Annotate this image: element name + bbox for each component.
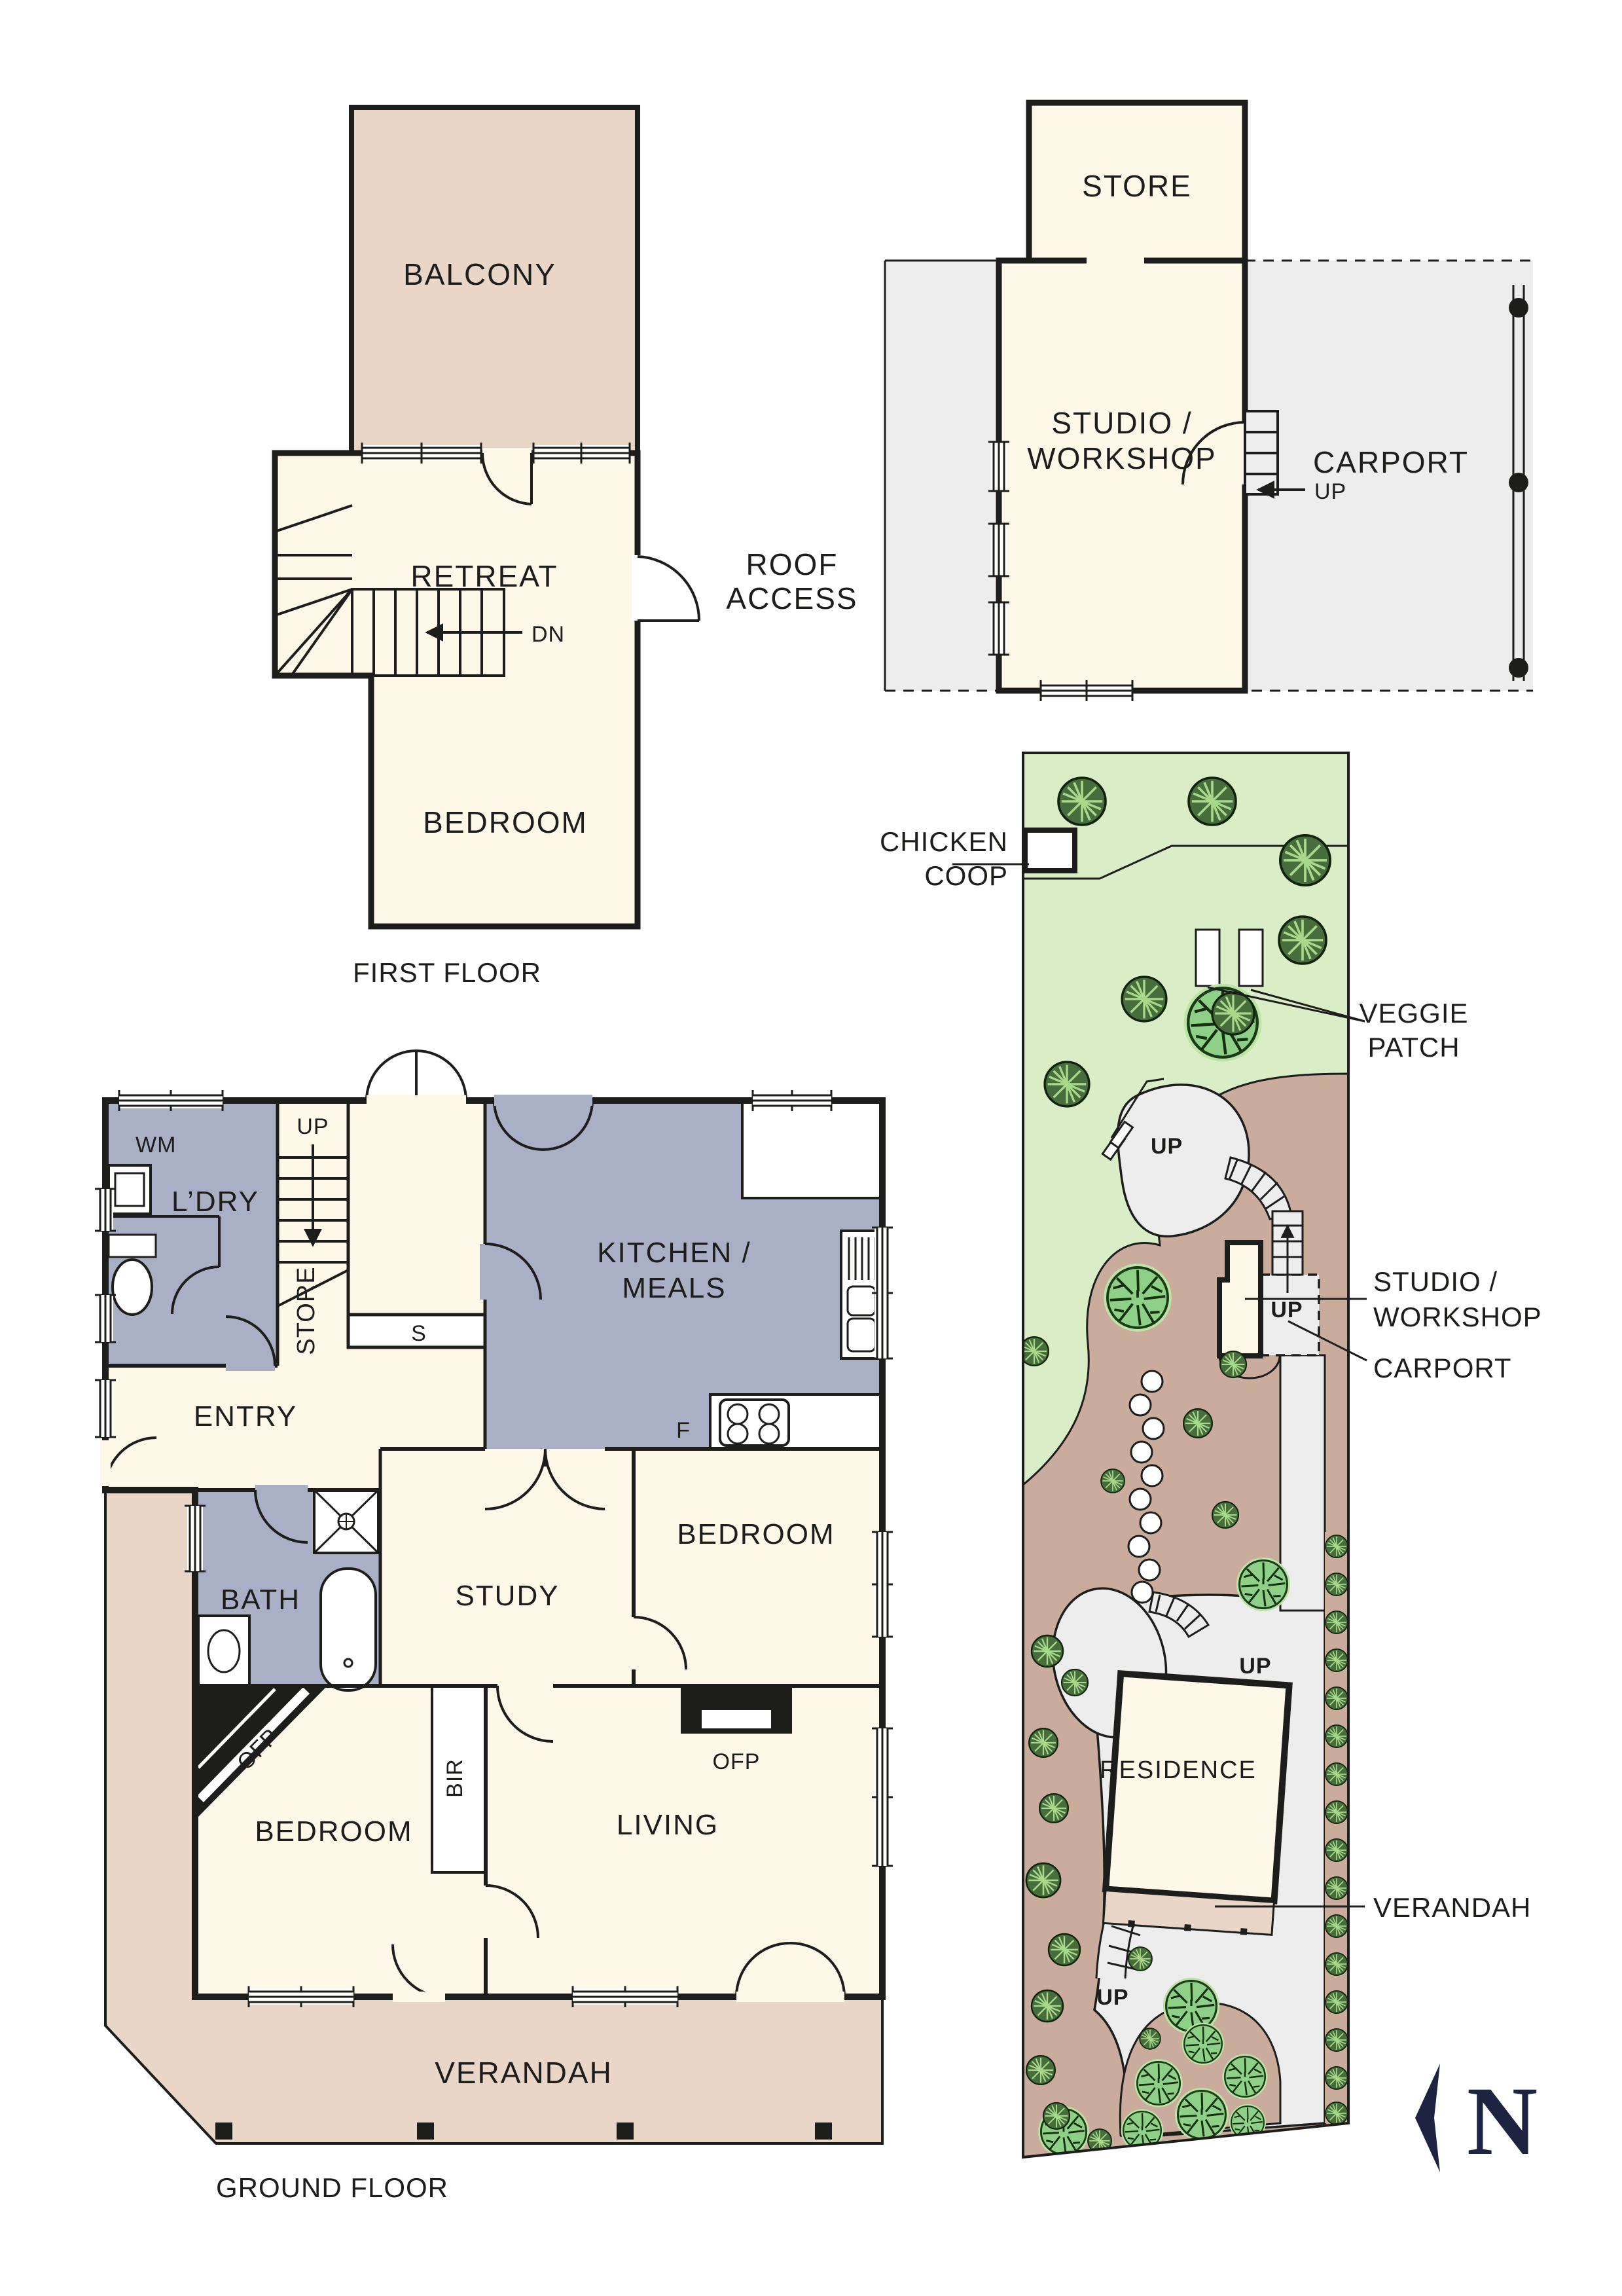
toilet-icon [109,1235,156,1315]
site-up-stairs: UP [1096,1985,1128,2010]
north-compass: N [1415,2064,1538,2176]
fridge-label: F [676,1418,691,1443]
tree-icon [1104,1264,1172,1332]
bush-icon [1325,2102,1348,2124]
verandah-label: VERANDAH [435,2056,613,2090]
first-floor-body [275,453,638,926]
entry-label: ENTRY [194,1400,297,1432]
ff-bedroom-label: BEDROOM [423,805,588,839]
store-label: STORE [1082,169,1192,203]
bush-icon [1325,1649,1348,1671]
site-studio-label2: WORKSHOP [1373,1302,1542,1332]
living-label: LIVING [617,1809,719,1841]
first-floor-plan: DN BALCONY RETREAT ROOF ACCESS BEDROOM F… [275,107,858,988]
bush-icon [1325,1535,1348,1558]
ob-up-label: UP [1314,479,1346,504]
bush-icon [1325,2067,1348,2089]
bush-icon [1049,1934,1080,1965]
gf-up-label: UP [297,1114,329,1139]
site-residence-group [1103,1673,1289,1937]
ob-studio-label2: WORKSHOP [1027,441,1216,475]
bush-icon [1325,1763,1348,1785]
bush-icon [1026,2056,1055,2085]
dn-label: DN [532,622,565,647]
kitchen-label2: MEALS [622,1272,726,1304]
bush-icon [1058,778,1106,825]
site-plan: CHICKEN COOP VEGGIE PATCH STUDIO / WORKS… [880,753,1542,2157]
bush-icon [1026,1863,1060,1897]
chicken-coop-label2: COOP [924,860,1008,891]
tree-icon [1175,2088,1229,2141]
bush-icon [1279,917,1326,964]
bush-icon [1220,1351,1246,1377]
bush-icon [1325,1687,1348,1709]
veggie-label2: PATCH [1367,1032,1460,1063]
bush-icon [1183,1409,1212,1438]
bush-icon [1122,977,1166,1021]
site-carport-label: CARPORT [1373,1353,1512,1383]
bush-icon [1032,1635,1063,1667]
wm-label: WM [135,1133,176,1157]
balcony-label: BALCONY [403,257,556,291]
ob-carport-label: CARPORT [1313,445,1469,479]
bush-icon [1043,2103,1070,2129]
ob-studio-label1: STUDIO / [1051,406,1192,440]
bush-icon [1325,1801,1348,1823]
site-up-top: UP [1151,1134,1183,1159]
bush-icon [1325,1573,1348,1595]
north-label: N [1467,2067,1538,2176]
ground-floor-title: GROUND FLOOR [216,2172,448,2203]
kitchen-label1: KITCHEN / [597,1237,751,1269]
vanity-icon [198,1616,249,1690]
bush-icon [1212,1502,1238,1528]
store-door-opening [1087,255,1144,266]
bush-icon [1045,1062,1089,1106]
bush-icon [1189,778,1236,825]
bathtub-icon [321,1569,376,1690]
shelf-label: S [411,1321,427,1346]
gf-store-label: STORE [293,1266,320,1355]
tree-icon [1222,2054,1267,2099]
chicken-coop [1025,830,1075,871]
gf-bedroom-label: BEDROOM [255,1815,412,1848]
study-label: STUDY [455,1580,559,1612]
retreat-label: RETREAT [410,559,558,593]
tree-icon [1182,2023,1225,2066]
floorplan-canvas: DN BALCONY RETREAT ROOF ACCESS BEDROOM F… [0,0,1622,2296]
bush-icon [1212,993,1254,1034]
north-arrow-icon [1415,2064,1440,2172]
bush-icon [1325,1915,1348,1937]
bush-icon [1029,1728,1058,1757]
bush-icon [1039,1794,1068,1823]
ofp-living-label: OFP [713,1749,761,1774]
bath-label: BATH [221,1584,300,1616]
bush-icon [1280,835,1330,885]
veggie-patch-bed [1196,930,1219,986]
bush-icon [1325,1611,1348,1633]
laundry-label: L’DRY [171,1186,259,1218]
bush-icon [1128,1947,1152,1971]
site-studio-label1: STUDIO / [1373,1266,1498,1297]
laundry-room [105,1101,278,1366]
roof-access-label: ROOF [746,547,838,581]
chicken-coop-label1: CHICKEN [880,826,1008,857]
living-fireplace [681,1686,792,1734]
bir-label: BIR [442,1758,467,1798]
site-verandah-label: VERANDAH [1373,1892,1531,1923]
bush-icon [1032,1990,1063,2022]
studio-room [999,261,1245,691]
tree-icon [1236,1558,1290,1611]
bedroom-mid-label: BEDROOM [677,1518,835,1550]
bush-icon [1325,2029,1348,2051]
bush-icon [1325,1991,1348,2013]
roof-access-label2: ACCESS [726,581,857,615]
door-roof-access [632,555,699,621]
bush-icon [1325,1839,1348,1861]
tree-icon [1134,2059,1182,2107]
outbuilding-plan: UP STORE STUDIO / WORKSHOP CARPORT [885,103,1533,701]
bush-icon [1062,1669,1088,1696]
residence-label: RESIDENCE [1100,1757,1257,1784]
site-up-res: UP [1239,1654,1271,1679]
site-residence [1106,1673,1289,1901]
bush-icon [1101,1469,1125,1493]
bush-icon [1140,2028,1161,2049]
shower-icon [314,1490,378,1553]
veggie-patch-bed [1239,930,1263,986]
bush-icon [1325,1953,1348,1975]
bush-icon [1325,1877,1348,1899]
floorplan-page: DN BALCONY RETREAT ROOF ACCESS BEDROOM F… [0,0,1622,2296]
kitchen-bench [710,1394,882,1449]
first-floor-title: FIRST FLOOR [353,957,541,988]
veggie-label1: VEGGIE [1359,998,1468,1029]
bush-icon [1325,1725,1348,1747]
kitchen-nook [742,1101,882,1198]
ground-floor-plan: WM L’DRY UP STORE S KITCHEN / MEALS F EN… [95,1051,893,2203]
site-up-carport: UP [1271,1298,1303,1322]
